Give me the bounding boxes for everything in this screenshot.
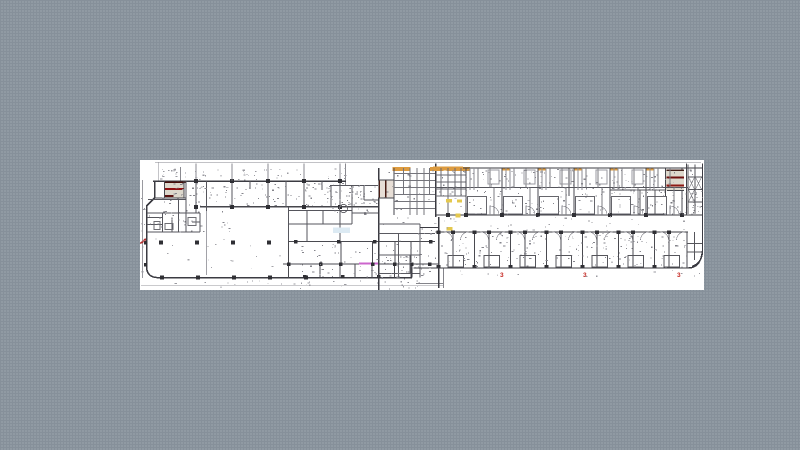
svg-text:3: 3 xyxy=(677,272,681,279)
svg-text:3: 3 xyxy=(583,272,587,279)
svg-text:3: 3 xyxy=(500,272,504,279)
